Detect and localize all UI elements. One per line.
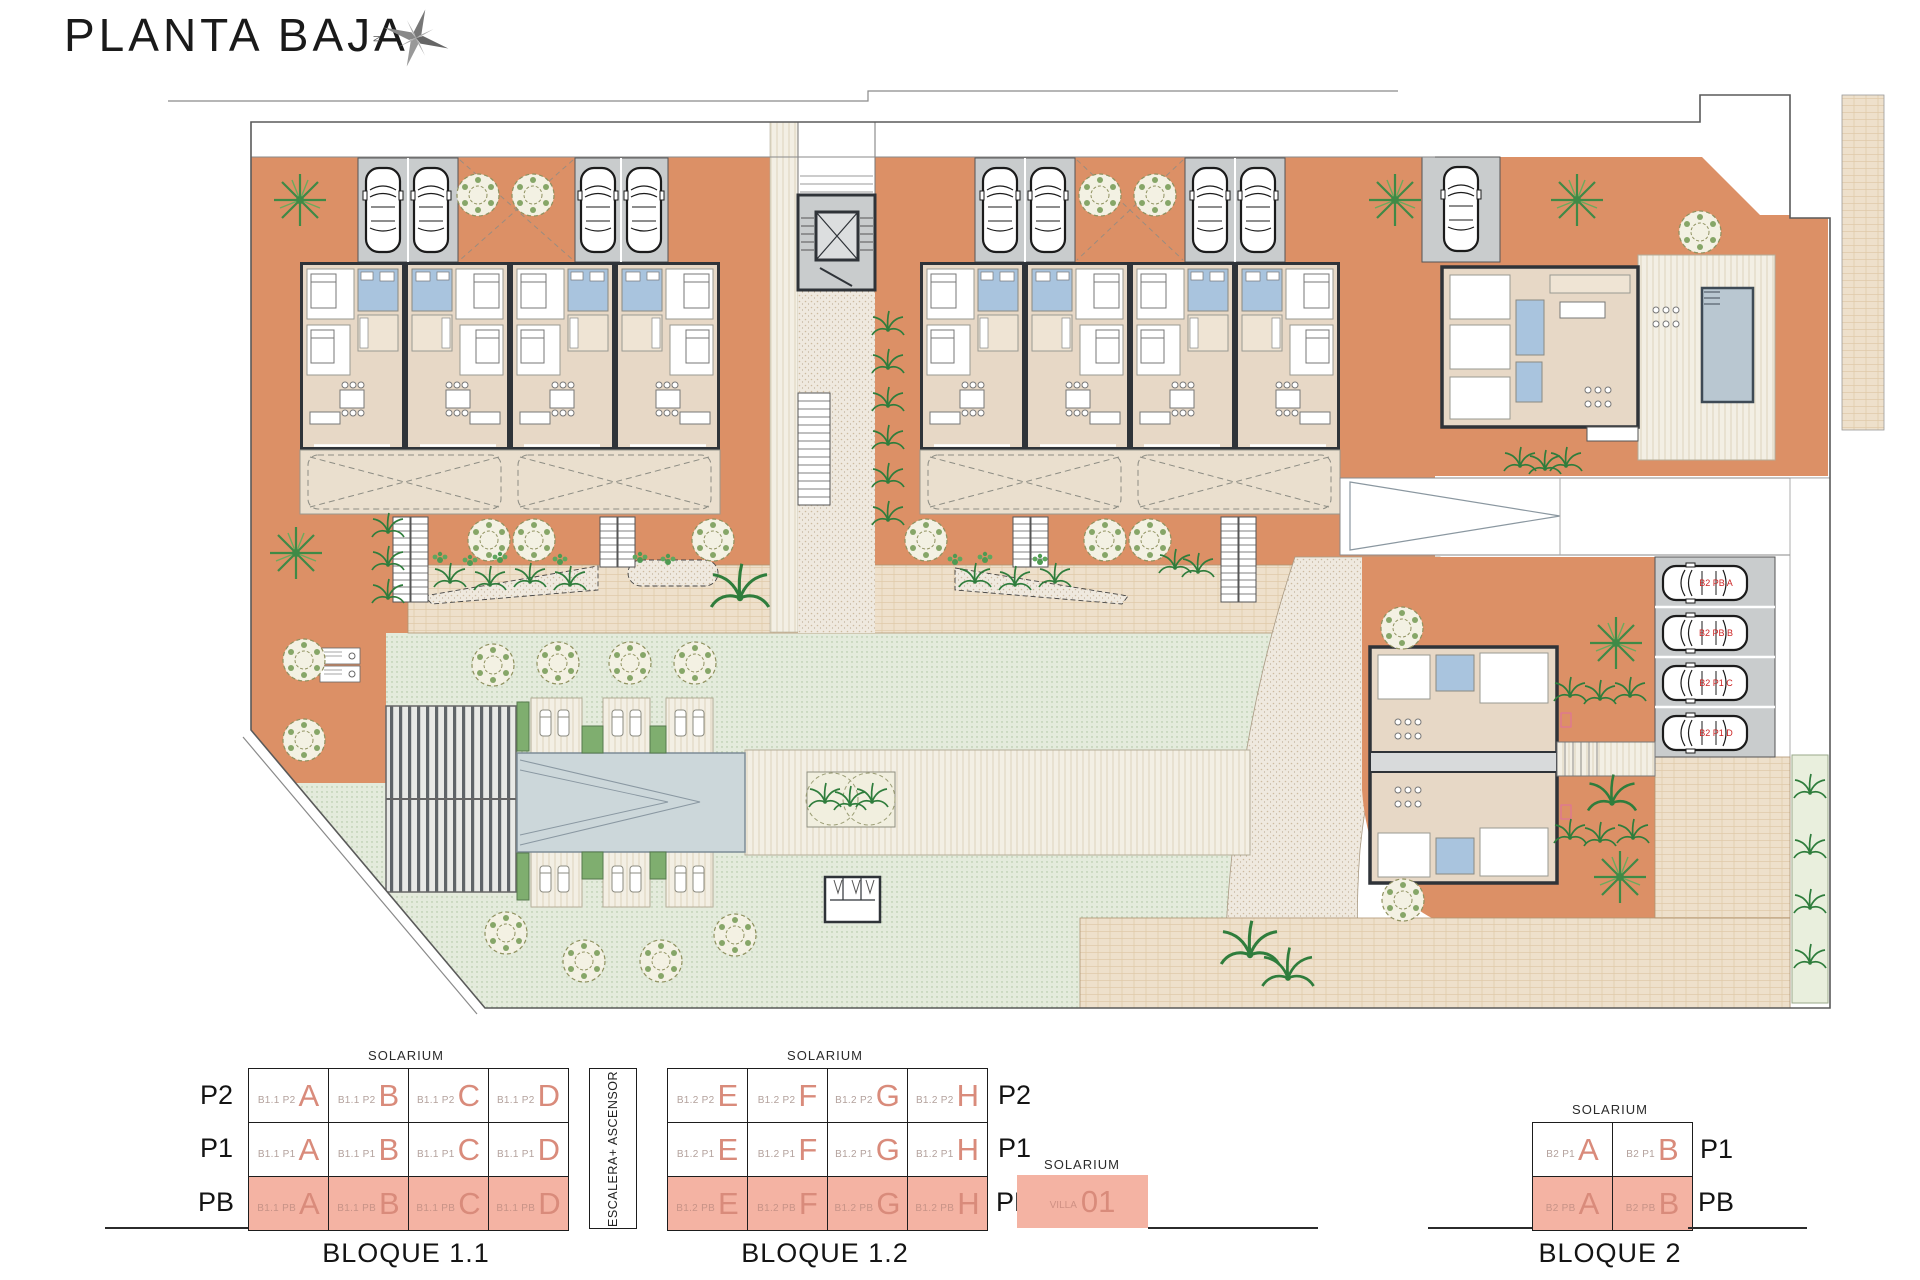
solarium-label: SOLARIUM xyxy=(368,1048,444,1063)
unit-code: B1.1 P2 xyxy=(497,1095,535,1106)
sun-lounger-icon xyxy=(693,866,704,892)
villa-name: VILLA xyxy=(1050,1200,1077,1211)
sun-deck xyxy=(666,852,713,907)
tree-icon xyxy=(283,639,325,681)
unit-letter: F xyxy=(798,1132,817,1168)
villa-building xyxy=(1442,267,1638,441)
ground-line xyxy=(1148,1227,1318,1229)
car-icon xyxy=(578,168,618,252)
unit-letter: B xyxy=(379,1132,400,1168)
unit-code: B1.2 P2 xyxy=(758,1095,796,1106)
parking-space-label: B2 PB A xyxy=(1699,578,1733,588)
sun-deck xyxy=(603,698,650,753)
sidewalk-strip xyxy=(1842,95,1884,430)
unit-letter: B xyxy=(1658,1132,1679,1168)
unit-code: B1.2 P1 xyxy=(835,1149,873,1160)
tree-icon xyxy=(714,914,756,956)
floor-label-p1: P1 xyxy=(200,1133,233,1164)
car-icon xyxy=(1238,168,1278,252)
unit-code: B1.2 PB xyxy=(676,1203,715,1214)
tree-icon xyxy=(457,174,499,216)
planter xyxy=(582,852,603,879)
unit-code: B1.1 P2 xyxy=(258,1095,296,1106)
pool-wc-block xyxy=(825,877,880,922)
tree-icon xyxy=(692,519,734,561)
unit-cell: B1.1 P2A xyxy=(249,1069,329,1123)
tree-icon xyxy=(1084,519,1126,561)
unit-letter: A xyxy=(299,1132,320,1168)
unit-letter: A xyxy=(1578,1132,1599,1168)
unit-cell: B1.1 P2C xyxy=(409,1069,489,1123)
compass-north-label: N xyxy=(372,36,382,43)
tree-icon xyxy=(674,642,716,684)
stairs-icon xyxy=(618,517,635,567)
tree-icon xyxy=(468,519,510,561)
floor-label-p1: P1 xyxy=(1700,1134,1733,1165)
stairs-icon xyxy=(1239,517,1256,602)
bloque-1-1-title: BLOQUE 1.1 xyxy=(322,1238,490,1269)
unit-cell: B1.2 P2H xyxy=(908,1069,988,1123)
unit-code: B1.1 PB xyxy=(337,1203,376,1214)
unit-letter: C xyxy=(458,1078,480,1114)
planter xyxy=(650,726,666,753)
villa-pool xyxy=(1702,288,1753,402)
unit-code: B1.2 PB xyxy=(835,1203,874,1214)
planter xyxy=(582,726,603,753)
garage xyxy=(575,158,668,262)
elevator-core xyxy=(798,195,875,290)
car-icon xyxy=(1441,167,1481,251)
car-icon xyxy=(1190,168,1230,252)
ground-line xyxy=(105,1227,248,1229)
planter xyxy=(517,702,529,751)
core-label: ESCALERA+ ASCENSOR xyxy=(606,1071,620,1227)
unit-letter: H xyxy=(957,1132,979,1168)
unit-letter: E xyxy=(718,1186,739,1222)
sun-lounger-icon xyxy=(558,866,569,892)
garage xyxy=(975,158,1075,262)
unit-cell: B1.2 P2G xyxy=(828,1069,908,1123)
unit-letter: A xyxy=(299,1078,320,1114)
sun-lounger-icon xyxy=(612,710,623,736)
tree-icon xyxy=(1079,174,1121,216)
solarium-label: SOLARIUM xyxy=(787,1048,863,1063)
sun-lounger-icon xyxy=(675,710,686,736)
unit-letter: F xyxy=(799,1186,818,1222)
unit-code: B2 PB xyxy=(1546,1203,1576,1214)
ground-line xyxy=(1688,1227,1807,1229)
bloque-1-1-table: B1.1 P2A B1.1 P2B B1.1 P2C B1.1 P2D B1.1… xyxy=(248,1068,569,1231)
unit-cell: B1.2 P1H xyxy=(908,1123,988,1177)
parking-space-label: B2 P1 C xyxy=(1699,678,1733,688)
unit-cell: B1.1 P1D xyxy=(489,1123,569,1177)
unit-cell: B1.1 P2D xyxy=(489,1069,569,1123)
sun-lounger-icon xyxy=(630,710,641,736)
sun-lounger-icon xyxy=(612,866,623,892)
unit-letter: B xyxy=(1659,1186,1680,1222)
spa-planter xyxy=(806,772,895,827)
garage xyxy=(358,158,458,262)
unit-cell: B2 PBB xyxy=(1613,1177,1693,1231)
unit-cell: B1.2 P2F xyxy=(748,1069,828,1123)
car-icon xyxy=(624,168,664,252)
entry-steps xyxy=(1557,742,1655,776)
stairs-icon xyxy=(393,517,410,602)
bloque-2-title: BLOQUE 2 xyxy=(1538,1238,1681,1269)
unit-cell: B2 P1A xyxy=(1533,1123,1613,1177)
unit-code: B1.2 P2 xyxy=(835,1095,873,1106)
bloque2-parking: B2 PB A B2 PB B B2 P1 C B2 P1 D xyxy=(1655,557,1775,757)
unit-cell: B1.1 P1A xyxy=(249,1123,329,1177)
unit-letter: E xyxy=(718,1078,739,1114)
unit-cell: B1.2 P1G xyxy=(828,1123,908,1177)
unit-letter: G xyxy=(876,1132,900,1168)
unit-code: B1.2 P1 xyxy=(677,1149,715,1160)
unit-cell: B1.2 PBH xyxy=(908,1177,988,1231)
unit-cell: B1.1 PBD xyxy=(489,1177,569,1231)
unit-cell: B1.1 PBC xyxy=(409,1177,489,1231)
sun-deck xyxy=(531,852,582,907)
unit-code: B2 P1 xyxy=(1546,1149,1575,1160)
unit-code: B1.1 P2 xyxy=(417,1095,455,1106)
terrace-band xyxy=(920,450,1340,514)
floor-label-pb: PB xyxy=(1698,1187,1734,1218)
sun-lounger-icon xyxy=(540,866,551,892)
unit-cell: B1.1 P2B xyxy=(329,1069,409,1123)
sun-deck xyxy=(603,852,650,907)
sun-lounger-icon xyxy=(693,710,704,736)
unit-code: B1.1 P1 xyxy=(417,1149,455,1160)
core-box: ESCALERA+ ASCENSOR xyxy=(589,1068,637,1229)
planter xyxy=(650,852,666,879)
sun-lounger-icon xyxy=(675,866,686,892)
side-path xyxy=(770,122,798,632)
tree-icon xyxy=(485,912,527,954)
unit-letter: A xyxy=(299,1186,320,1222)
tree-icon xyxy=(563,940,605,982)
tree-icon xyxy=(640,940,682,982)
unit-letter: A xyxy=(1579,1186,1600,1222)
unit-letter: G xyxy=(876,1186,900,1222)
unit-letter: D xyxy=(538,1186,560,1222)
floor-label-p2: P2 xyxy=(200,1080,233,1111)
tree-icon xyxy=(905,519,947,561)
unit-code: B2 PB xyxy=(1626,1203,1656,1214)
tree-icon xyxy=(1134,174,1176,216)
unit-cell: B2 PBA xyxy=(1533,1177,1613,1231)
unit-letter: H xyxy=(957,1186,979,1222)
stairs-icon xyxy=(411,517,428,602)
stairs-icon xyxy=(600,517,617,567)
unit-cell: B1.2 PBE xyxy=(668,1177,748,1231)
unit-code: B1.2 P2 xyxy=(916,1095,954,1106)
stairs xyxy=(798,393,830,505)
tree-icon xyxy=(513,519,555,561)
unit-letter: C xyxy=(458,1132,480,1168)
unit-cell: B1.2 PBF xyxy=(748,1177,828,1231)
sun-lounger-icon xyxy=(540,710,551,736)
unit-letter: D xyxy=(538,1132,560,1168)
page-title: PLANTA BAJA xyxy=(64,8,409,62)
unit-cell: B1.1 PBA xyxy=(249,1177,329,1231)
unit-letter: F xyxy=(798,1078,817,1114)
unit-code: B2 P1 xyxy=(1626,1149,1655,1160)
unit-code: B1.2 P1 xyxy=(758,1149,796,1160)
floor-label-p2: P2 xyxy=(998,1080,1031,1111)
unit-code: B1.1 P2 xyxy=(338,1095,376,1106)
floor-label-pb: PB xyxy=(198,1187,234,1218)
car-icon xyxy=(980,168,1020,252)
tree-icon xyxy=(472,644,514,686)
car-icon xyxy=(363,168,403,252)
bloque-1-2-table: B1.2 P2E B1.2 P2F B1.2 P2G B1.2 P2H B1.2… xyxy=(667,1068,988,1231)
paved-strip xyxy=(1655,757,1790,918)
car-icon xyxy=(411,168,451,252)
unit-code: B1.1 P1 xyxy=(497,1149,535,1160)
unit-code: B1.1 PB xyxy=(496,1203,535,1214)
sun-deck xyxy=(531,698,582,753)
unit-code: B1.2 P1 xyxy=(916,1149,954,1160)
unit-code: B1.1 P1 xyxy=(338,1149,376,1160)
sun-lounger-icon xyxy=(558,710,569,736)
unit-code: B1.1 P1 xyxy=(258,1149,296,1160)
unit-cell: B1.2 PBG xyxy=(828,1177,908,1231)
tree-icon xyxy=(537,642,579,684)
unit-letter: E xyxy=(718,1132,739,1168)
terrace-band xyxy=(300,450,720,514)
tree-icon xyxy=(1382,879,1424,921)
villa-number: 01 xyxy=(1081,1184,1115,1220)
floor-label-p1: P1 xyxy=(998,1133,1031,1164)
unit-cell: B1.1 P1B xyxy=(329,1123,409,1177)
unit-code: B1.2 PB xyxy=(757,1203,796,1214)
unit-cell: B1.2 P2E xyxy=(668,1069,748,1123)
access-road xyxy=(1340,478,1830,555)
unit-cell: B1.2 P1E xyxy=(668,1123,748,1177)
bloque-1-2-title: BLOQUE 1.2 xyxy=(741,1238,909,1269)
paved-area xyxy=(1080,918,1790,1008)
unit-cell: B1.1 P1C xyxy=(409,1123,489,1177)
villa-cell: VILLA 01 xyxy=(1017,1175,1148,1228)
unit-cell: B1.2 P1F xyxy=(748,1123,828,1177)
unit-cell: B1.1 PBB xyxy=(329,1177,409,1231)
ground-line xyxy=(1428,1227,1532,1229)
unit-letter: B xyxy=(379,1186,400,1222)
tree-icon xyxy=(1679,211,1721,253)
bloque-2-table: B2 P1A B2 P1B B2 PBA B2 PBB xyxy=(1532,1122,1693,1231)
unit-code: B1.2 PB xyxy=(915,1203,954,1214)
unit-letter: G xyxy=(876,1078,900,1114)
solarium-label: SOLARIUM xyxy=(1572,1102,1648,1117)
tree-icon xyxy=(512,174,554,216)
planter xyxy=(517,853,529,900)
building-bloque-1-1 xyxy=(300,264,720,515)
sun-lounger-icon xyxy=(630,866,641,892)
floor-plan-page: B2 PB A B2 PB B B2 P1 C B2 P1 D xyxy=(0,0,1920,1280)
solarium-label: SOLARIUM xyxy=(1044,1157,1120,1172)
unit-code: B1.1 PB xyxy=(416,1203,455,1214)
tree-icon xyxy=(609,642,651,684)
car-icon xyxy=(1028,168,1068,252)
tree-icon xyxy=(283,719,325,761)
sun-deck xyxy=(666,698,713,753)
unit-letter: C xyxy=(458,1186,480,1222)
unit-cell: B2 P1B xyxy=(1613,1123,1693,1177)
compass-rose: N xyxy=(372,2,450,74)
tree-icon xyxy=(1381,607,1423,649)
parking-space-label: B2 P1 D xyxy=(1699,728,1733,738)
unit-code: B1.1 PB xyxy=(257,1203,296,1214)
stairs-icon xyxy=(1221,517,1238,602)
unit-code: B1.2 P2 xyxy=(677,1095,715,1106)
tree-icon xyxy=(1129,519,1171,561)
unit-letter: D xyxy=(538,1078,560,1114)
stairs-icon xyxy=(1013,517,1030,567)
unit-letter: H xyxy=(957,1078,979,1114)
building-bloque-1-2 xyxy=(920,264,1340,515)
parking-space-label: B2 PB B xyxy=(1699,628,1733,638)
unit-letter: B xyxy=(379,1078,400,1114)
garage xyxy=(1185,158,1285,262)
